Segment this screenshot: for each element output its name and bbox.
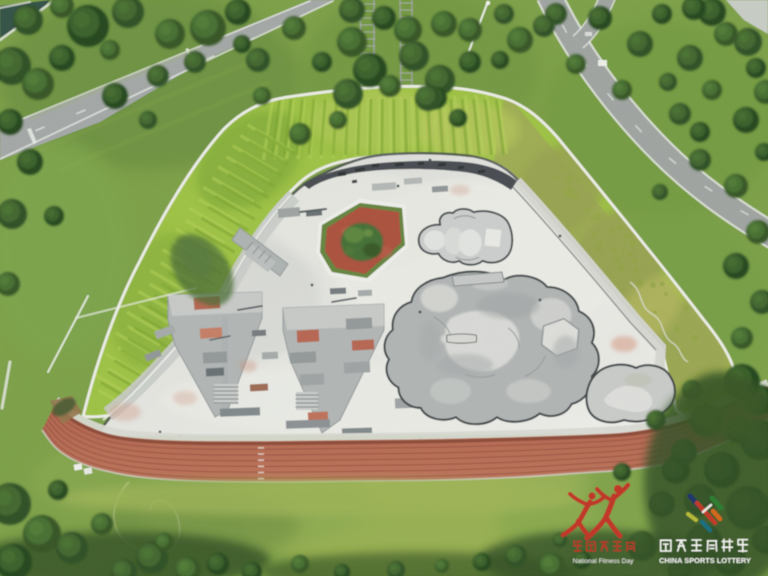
svg-text:National Fitness Day: National Fitness Day: [573, 558, 635, 565]
svg-text:CHINA SPORTS LOTTERY: CHINA SPORTS LOTTERY: [659, 556, 751, 565]
